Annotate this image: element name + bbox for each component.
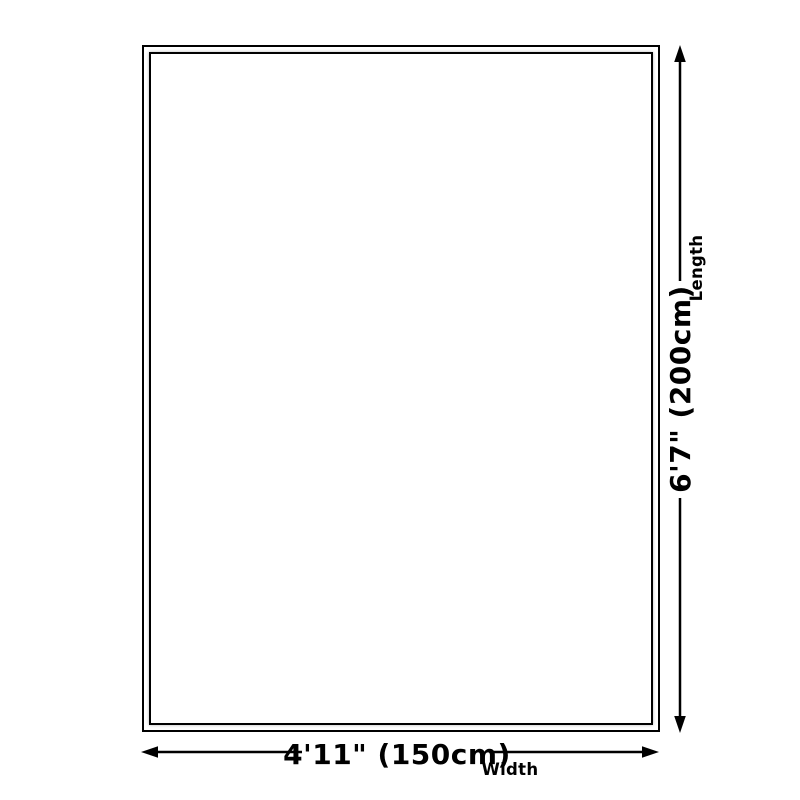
width-value: 4'11" (150cm) (283, 741, 511, 769)
width-label: Width (482, 762, 539, 779)
length-value: 6'7" (200cm) (667, 285, 695, 493)
product-outline-inner-border (149, 52, 653, 725)
arrow-down-icon (674, 716, 686, 733)
dimension-diagram: 6'7" (200cm) Length 4'11" (150cm) Width (0, 0, 800, 800)
length-label: Length (689, 235, 706, 302)
arrow-left-icon (141, 746, 158, 758)
arrow-right-icon (642, 746, 659, 758)
arrow-up-icon (674, 45, 686, 62)
product-outline (142, 45, 660, 732)
